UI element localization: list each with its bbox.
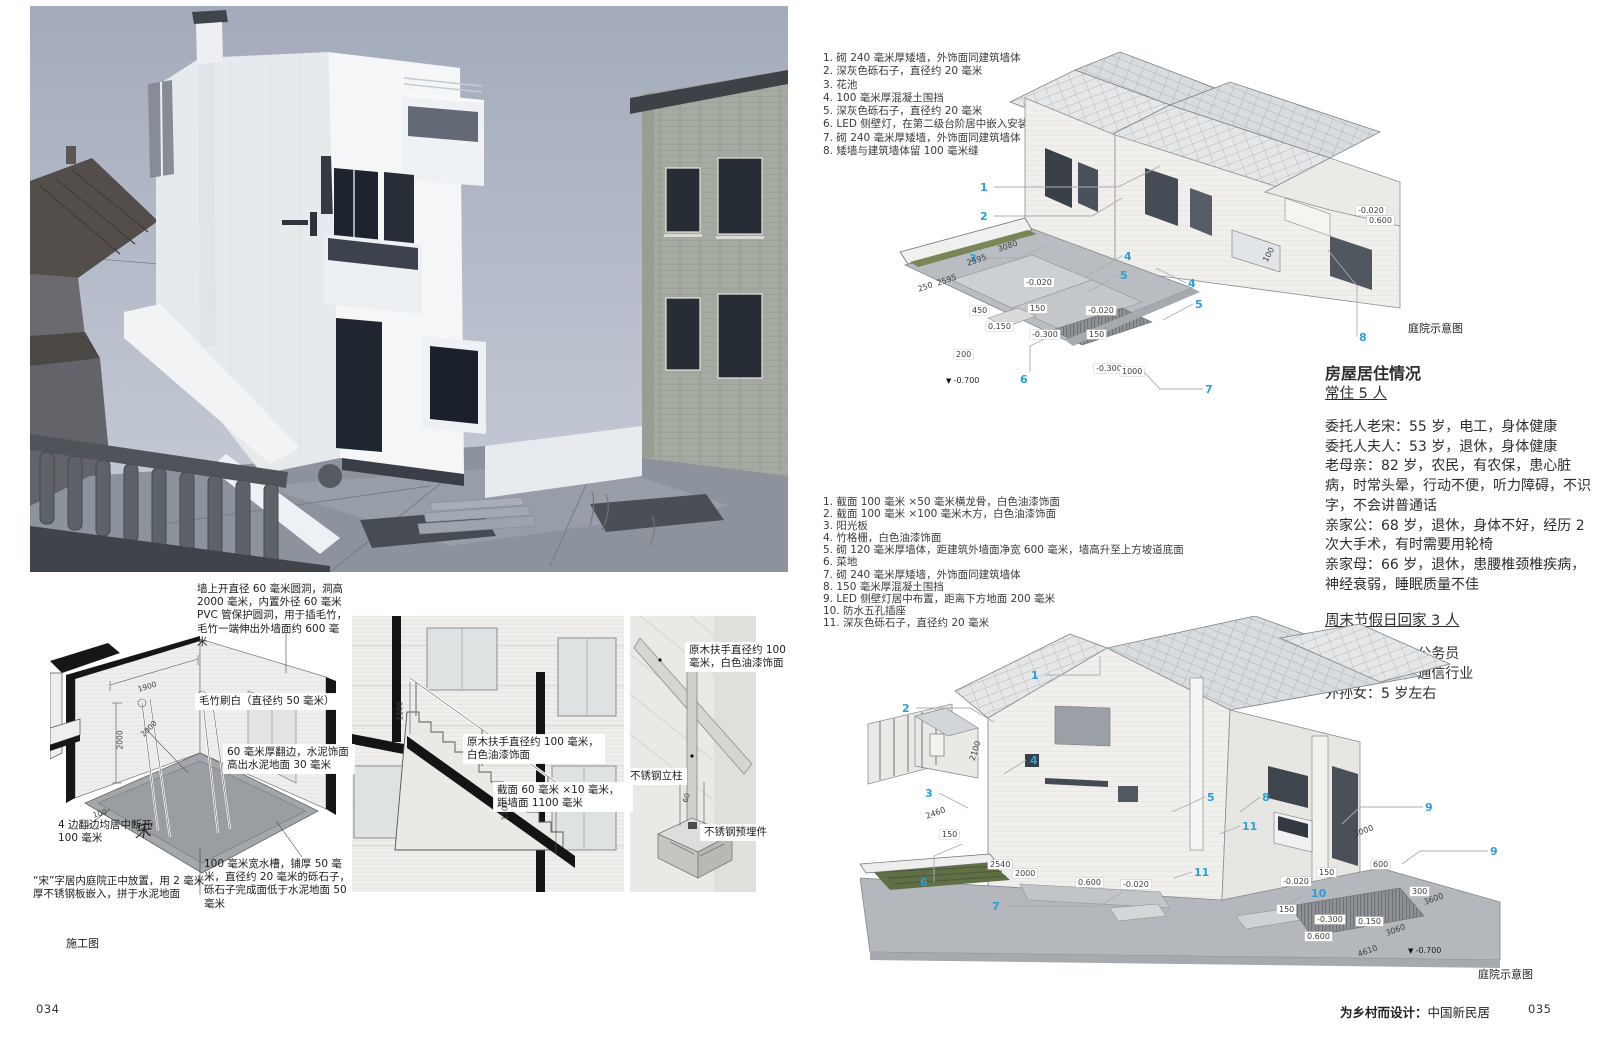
dim-label: 0.150 [986, 322, 1013, 331]
axon-upper-drawing [860, 40, 1420, 395]
callout-number: 8 [1359, 331, 1367, 344]
dim-label: 2540 [988, 860, 1012, 869]
axon-upper: 1234545678 308025952595250100-0.02045015… [860, 40, 1420, 395]
dim-label: 300 [1410, 887, 1429, 896]
dim-label: 2000 [1013, 869, 1037, 878]
callout-number: 9 [1490, 845, 1498, 858]
callout-number: 1 [980, 181, 988, 194]
post-dims: 60 [630, 616, 756, 892]
footer-title-bold: 为乡村而设计： [1340, 1005, 1428, 1020]
footer-title: 为乡村而设计：中国新民居 [1290, 1002, 1490, 1021]
note-item: 1. 截面 100 毫米 ×50 毫米横龙骨，白色油漆饰面 [823, 496, 1184, 508]
dim-label: 0.150 [1356, 917, 1383, 926]
callout-number: 7 [1205, 383, 1213, 396]
resident-entry: 老母亲：82 岁，农民，有农保，患心脏病，时常头晕，行动不便，听力障碍，不识字，… [1325, 457, 1591, 516]
callout-number: 11 [1194, 866, 1209, 879]
dim-label: 2000 [116, 730, 125, 749]
dim-label: 150 [1277, 905, 1296, 914]
dim-label: 2000 [139, 719, 159, 739]
occupancy-subhead-resident: 常住 5 人 [1325, 384, 1591, 404]
dim-label: 150 [1087, 330, 1106, 339]
book-spread: 宋 [0, 0, 1600, 1060]
note-item: 7. 砌 240 毫米厚矮墙，外饰面同建筑墙体 [823, 569, 1184, 581]
page-number-right: 035 [1528, 1002, 1551, 1016]
dim-label: 100 [92, 807, 108, 820]
dim-label: -0.020 [1024, 278, 1054, 287]
construction-caption: 施工图 [66, 935, 99, 951]
building-photo [30, 6, 788, 572]
footer-title-regular: 中国新民居 [1427, 1005, 1490, 1020]
note-item: 2. 截面 100 毫米 ×100 毫米木方，白色油漆饰面 [823, 508, 1184, 520]
dim-label: -0.300 [1030, 330, 1060, 339]
resident-entry: 委托人夫人：53 岁，退休，身体健康 [1325, 438, 1591, 458]
axon-lower-drawing [860, 616, 1508, 988]
dim-label: 450 [970, 306, 989, 315]
brick-building [630, 70, 788, 496]
dim-label: 150 [940, 830, 959, 839]
callout-number: 5 [1120, 269, 1128, 282]
dim-label: 0.600 [1076, 878, 1103, 887]
dim-label: -0.020 [1086, 306, 1116, 315]
callout-number: 2 [902, 702, 910, 715]
dim-label: -0.300 [1315, 915, 1345, 924]
callout-number: 9 [1425, 801, 1433, 814]
callout-number: 6 [1020, 373, 1028, 386]
callout-number: 8 [1262, 791, 1270, 804]
dim-label: -0.020 [1121, 880, 1151, 889]
note-item: 8. 150 毫米厚混凝土围挡 [823, 581, 1184, 593]
callout-number: 6 [920, 876, 928, 889]
dim-label: 150 [1028, 304, 1047, 313]
callout-number: 1 [1031, 669, 1039, 682]
dim-label: -0.700 [946, 376, 979, 385]
axon-lower-caption: 庭院示意图 [1478, 966, 1533, 982]
notes-lower: 1. 截面 100 毫米 ×50 毫米横龙骨，白色油漆饰面2. 截面 100 毫… [823, 496, 1184, 629]
dim-label: 1100 [396, 701, 405, 720]
dim-label: 200 [954, 350, 973, 359]
resident-entry: 亲家公：68 岁，退休，身体不好，经历 2 次大手术，有时需要用轮椅 [1325, 517, 1591, 556]
note-item: 6. 菜地 [823, 556, 1184, 568]
callout-number: 10 [1311, 887, 1326, 900]
callout-number: 5 [1195, 298, 1203, 311]
axon-lower: 1234567899101111 21002460300036003060461… [860, 616, 1508, 988]
dim-label: 1000 [1120, 367, 1144, 376]
dim-label: 1100 [501, 801, 510, 820]
resident-entry: 亲家母：66 岁，退休，患腰椎颈椎疾病，神经衰弱，睡眠质量不佳 [1325, 556, 1591, 595]
dim-label: -0.020 [1281, 877, 1311, 886]
occupancy-title: 房屋居住情况 [1325, 364, 1591, 384]
note-item: 4. 竹格栅，白色油漆饰面 [823, 532, 1184, 544]
callout-number: 3 [925, 787, 933, 800]
dim-label: 1900 [137, 680, 158, 694]
page-number-left: 034 [36, 1002, 59, 1016]
stair-dims: 11001100 [352, 616, 624, 892]
note-item: 9. LED 侧壁灯居中布置，距离下方地面 200 毫米 [823, 593, 1184, 605]
dim-label: 0.600 [1367, 216, 1394, 225]
resident-entry: 委托人老宋：55 岁，电工，身体健康 [1325, 418, 1591, 438]
dim-label: 60 [681, 792, 692, 804]
dim-label: 600 [1371, 860, 1390, 869]
axon-upper-caption: 庭院示意图 [1408, 320, 1463, 336]
dim-label: 0.600 [1305, 932, 1332, 941]
callout-number: 7 [992, 900, 1000, 913]
dim-label: -0.700 [1408, 946, 1441, 955]
callout-number: 5 [1207, 791, 1215, 804]
note-item: 3. 阳光板 [823, 520, 1184, 532]
residents-list: 委托人老宋：55 岁，电工，身体健康委托人夫人：53 岁，退休，身体健康老母亲：… [1325, 418, 1591, 595]
callout-number: 4 [1188, 277, 1196, 290]
callout-number: 4 [1030, 754, 1038, 767]
callout-number: 2 [980, 210, 988, 223]
note-item: 5. 砌 120 毫米厚墙体，距建筑外墙面净宽 600 毫米，墙高升至上方坡道底… [823, 544, 1184, 556]
dim-label: -0.020 [1356, 206, 1386, 215]
dim-label: 150 [1317, 868, 1336, 877]
courtyard-dims: 190020002000100 [50, 633, 342, 918]
callout-number: 4 [1124, 250, 1132, 263]
callout-number: 11 [1242, 820, 1257, 833]
